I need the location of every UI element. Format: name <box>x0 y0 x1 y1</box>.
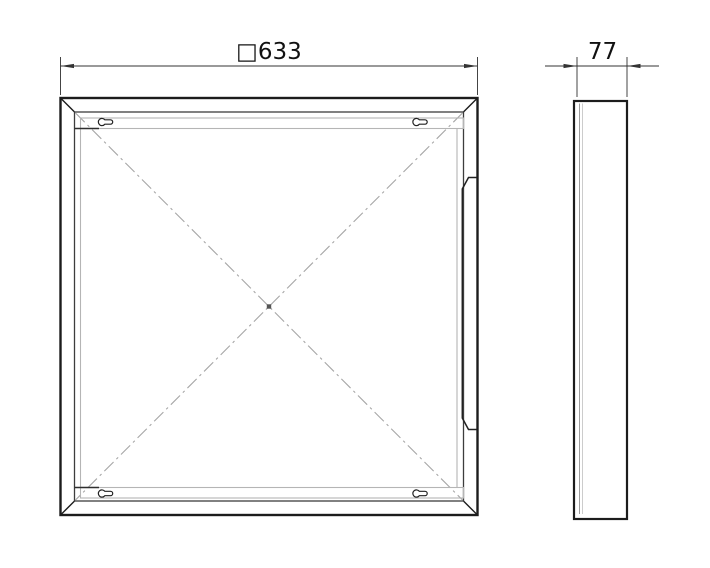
corner-chamfer-bottom-right <box>463 501 477 515</box>
front-view <box>61 98 478 515</box>
side-view <box>574 101 627 519</box>
side-latch-recess <box>462 178 477 430</box>
keyhole-slot-top-right <box>413 118 427 125</box>
side-dimension: 77 <box>545 39 659 97</box>
mounting-rail-bottom <box>81 488 464 499</box>
dimension-arrow-side-left <box>564 64 578 68</box>
technical-drawing-canvas: □633 77 <box>0 0 710 568</box>
keyhole-slot-bottom-right <box>413 490 427 497</box>
dimension-label-front: □633 <box>236 39 302 65</box>
dimension-label-side: 77 <box>588 39 617 65</box>
front-dimension: □633 <box>61 39 478 95</box>
center-marker <box>267 304 271 308</box>
mounting-rail-top <box>81 118 464 129</box>
technical-drawing-page: □633 77 <box>0 0 710 568</box>
corner-chamfer-bottom-left <box>61 501 75 515</box>
keyhole-slot-top-left <box>98 118 112 125</box>
corner-chamfer-top-right <box>463 99 477 113</box>
dimension-arrow-side-right <box>627 64 641 68</box>
dimension-arrow-front-left <box>61 64 75 68</box>
corner-chamfer-top-left <box>61 99 75 113</box>
dimension-arrow-front-right <box>464 64 478 68</box>
keyhole-slot-bottom-left <box>98 490 112 497</box>
side-body <box>574 101 627 519</box>
